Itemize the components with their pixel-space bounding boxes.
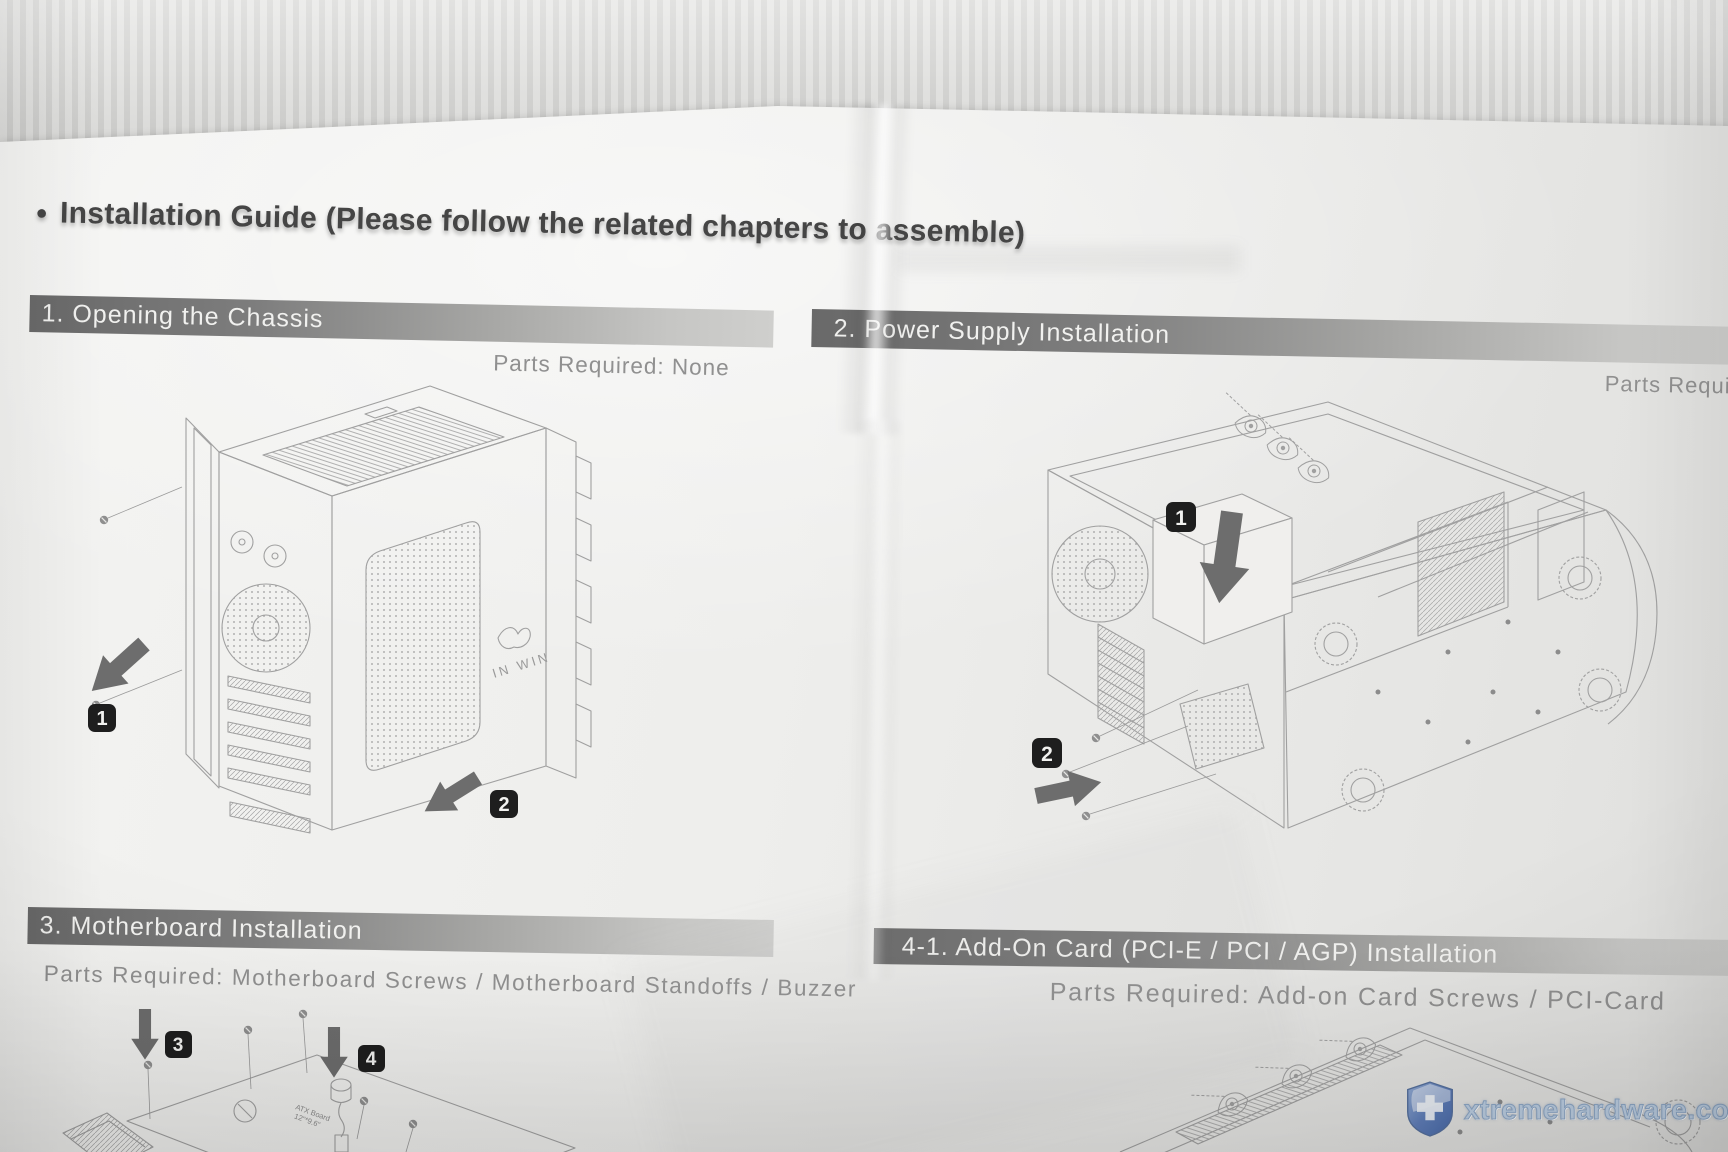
manual-photo: ●Installation Guide (Please follow the r… <box>0 0 1728 1152</box>
shield-icon <box>1404 1080 1456 1140</box>
thumbscrew <box>264 545 286 567</box>
rear-fan-grille <box>222 584 310 672</box>
step-3-arrow-icon <box>131 1009 159 1060</box>
chassis-line-art <box>1048 393 1657 828</box>
side-mesh-window <box>366 522 480 771</box>
bullet-icon: ● <box>35 202 48 224</box>
watermark: xtremehardware.com <box>1404 1080 1728 1140</box>
bottom-vent-mesh <box>1180 684 1264 769</box>
top-vent-grille <box>263 407 504 486</box>
svg-text:1: 1 <box>1175 507 1187 530</box>
svg-text:2: 2 <box>1041 743 1053 766</box>
section-2-header-label: 2. Power Supply Installation <box>833 309 1170 353</box>
step-2-arrow-icon <box>1032 765 1105 814</box>
motherboard-outline <box>127 1055 575 1152</box>
step-2-badge: 2 <box>1032 738 1062 768</box>
drive-cage <box>1418 492 1504 636</box>
svg-text:2: 2 <box>498 794 509 816</box>
svg-text:1: 1 <box>96 708 107 730</box>
chassis-line-art: IN WIN <box>186 386 591 833</box>
step-3-badge: 3 <box>165 1031 192 1058</box>
step-1-badge: 1 <box>88 704 116 732</box>
section-1-header-label: 1. Opening the Chassis <box>41 295 324 338</box>
step-2-arrow-icon <box>416 764 487 826</box>
svg-text:3: 3 <box>173 1035 184 1056</box>
step-4-arrow-icon <box>320 1027 348 1078</box>
bezel-corner <box>63 1113 153 1152</box>
step-4-badge: 4 <box>358 1045 385 1072</box>
opening-chassis-diagram: IN WIN 1 2 <box>70 356 720 826</box>
section-3-header-label: 3. Motherboard Installation <box>39 907 363 950</box>
rear-fan-grille <box>1052 526 1148 622</box>
buzzer <box>331 1079 351 1152</box>
bottom-screw-dots <box>1376 620 1561 745</box>
step-1-arrow-icon <box>79 630 157 705</box>
board-label: ATX Board 12"*9.6" <box>291 1102 331 1131</box>
thumbscrew <box>231 531 253 553</box>
step-2-badge: 2 <box>490 790 518 818</box>
watermark-text: xtremehardware.com <box>1464 1094 1728 1126</box>
svg-text:IN WIN: IN WIN <box>490 649 552 681</box>
power-supply-diagram: 1 2 <box>948 392 1708 897</box>
front-bezel-curve <box>1606 510 1657 724</box>
toolfree-clip-icon <box>1278 438 1336 487</box>
svg-text:4: 4 <box>366 1049 377 1070</box>
front-bezel-edge <box>546 428 576 778</box>
inwin-logo: IN WIN <box>490 628 552 681</box>
step-1-badge: 1 <box>1166 502 1196 532</box>
motherboard-diagram: ATX Board 12"*9.6" 3 <box>55 993 725 1152</box>
